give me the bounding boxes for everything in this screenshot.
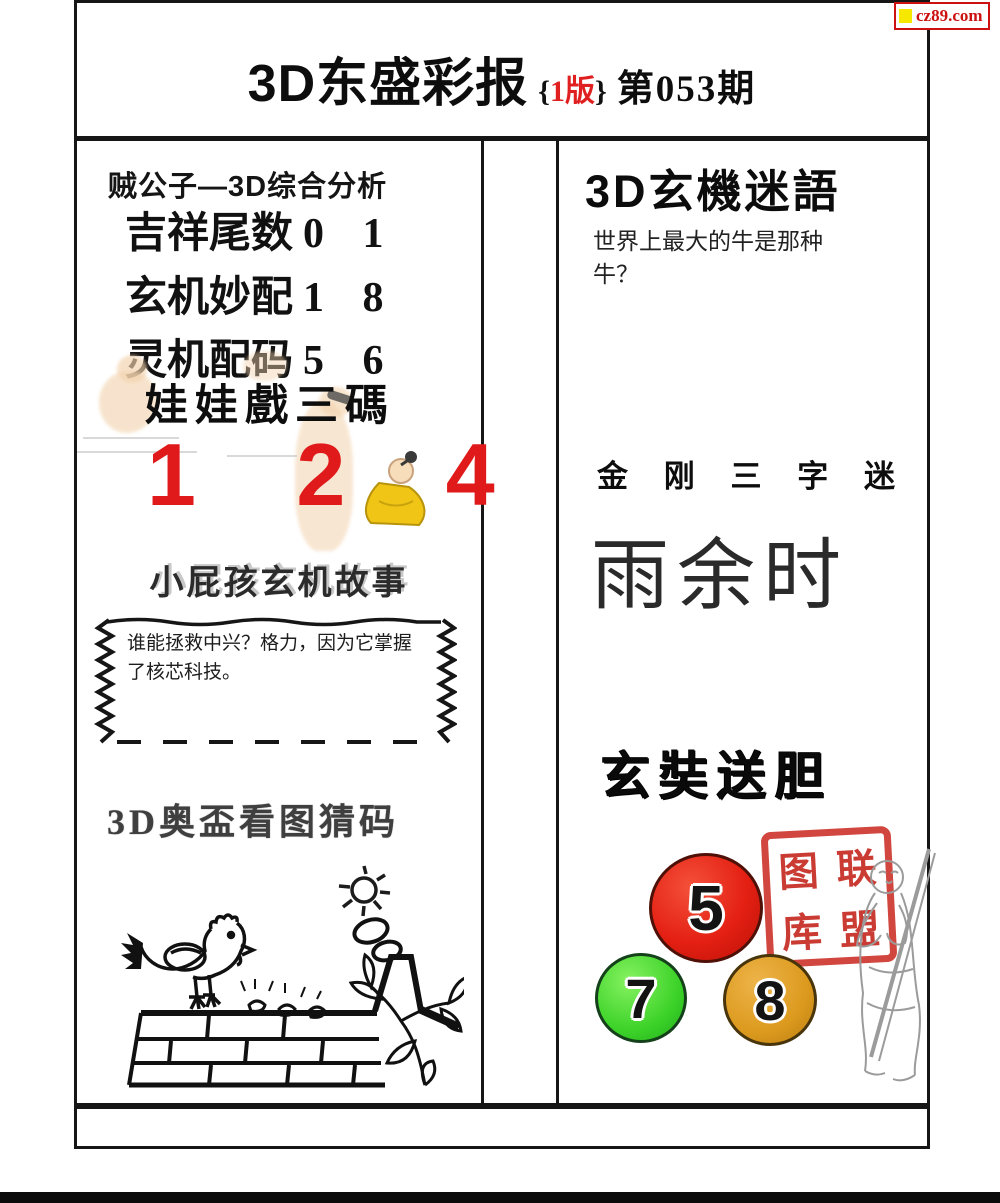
picture-riddle-title: 3D奥盃看图猜码 — [107, 793, 399, 845]
monk-drawing — [841, 847, 937, 1087]
analysis-row: 吉祥尾数0 1 — [125, 199, 398, 260]
riddle-question: 世界上最大的牛是那种牛？ — [593, 225, 851, 292]
dan-section-title: 玄奘送胆 — [601, 735, 833, 810]
number-ball-orange: 8 — [723, 954, 817, 1046]
yellow-square-icon — [899, 9, 912, 23]
story-box: 谁能拯救中兴？格力，因为它掌握了核芯科技。 — [93, 615, 457, 751]
analysis-value: 1 8 — [303, 275, 398, 321]
site-watermark-link[interactable]: cz89.com — [894, 2, 990, 30]
analysis-value: 0 1 — [303, 211, 398, 257]
wawa-numbers: 1 2 4 — [147, 424, 533, 526]
number-ball-green: 7 — [595, 953, 687, 1043]
ball-number: 5 — [688, 871, 724, 945]
three-char-riddle-answer: 雨余时 — [591, 513, 849, 625]
issue-number: 第053期 — [617, 58, 757, 112]
masthead: 3D东盛彩报 {1版} 第053期 — [77, 3, 927, 141]
seal-char: 图 — [777, 838, 820, 898]
site-url: cz89.com — [916, 6, 983, 26]
analysis-label: 玄机妙配 — [125, 275, 293, 321]
edition-label: {1版} — [538, 66, 607, 110]
sun-icon — [335, 863, 393, 919]
newspaper-page: 3D东盛彩报 {1版} 第053期 贼公子—3D综合分析 吉祥尾数0 1 玄机妙… — [74, 0, 930, 1149]
page-body: 贼公子—3D综合分析 吉祥尾数0 1 玄机妙配1 8 灵机配码5 6 — [77, 141, 927, 1109]
seal-char: 库 — [780, 899, 823, 959]
bottom-black-bar — [0, 1192, 1000, 1203]
story-text: 谁能拯救中兴？格力，因为它掌握了核芯科技。 — [127, 629, 419, 688]
number-ball-red: 5 — [649, 853, 763, 963]
analysis-label: 吉祥尾数 — [125, 211, 293, 257]
left-column: 贼公子—3D综合分析 吉祥尾数0 1 玄机妙配1 8 灵机配码5 6 — [77, 141, 484, 1103]
paper-title: 3D东盛彩报 — [248, 41, 528, 116]
three-char-riddle-title: 金 刚 三 字 迷 — [597, 451, 909, 496]
masthead-title-row: 3D东盛彩报 {1版} 第053期 — [77, 41, 927, 116]
rooster-well-drawing — [119, 913, 464, 1091]
ball-number: 7 — [625, 966, 656, 1031]
footer-strip — [77, 1109, 927, 1146]
edition-number: 1版 — [550, 75, 595, 108]
yellow-robe-figure-art — [345, 449, 441, 533]
right-column: 3D玄機迷語 世界上最大的牛是那种牛？ 金 刚 三 字 迷 雨余时 玄奘送胆 图… — [559, 141, 927, 1103]
story-section-title: 小屁孩玄机故事 — [77, 555, 481, 604]
riddle-section-title: 3D玄機迷語 — [585, 155, 841, 220]
analysis-row: 玄机妙配1 8 — [125, 263, 398, 324]
ball-number: 8 — [754, 968, 785, 1033]
middle-spacer-column — [484, 141, 559, 1103]
